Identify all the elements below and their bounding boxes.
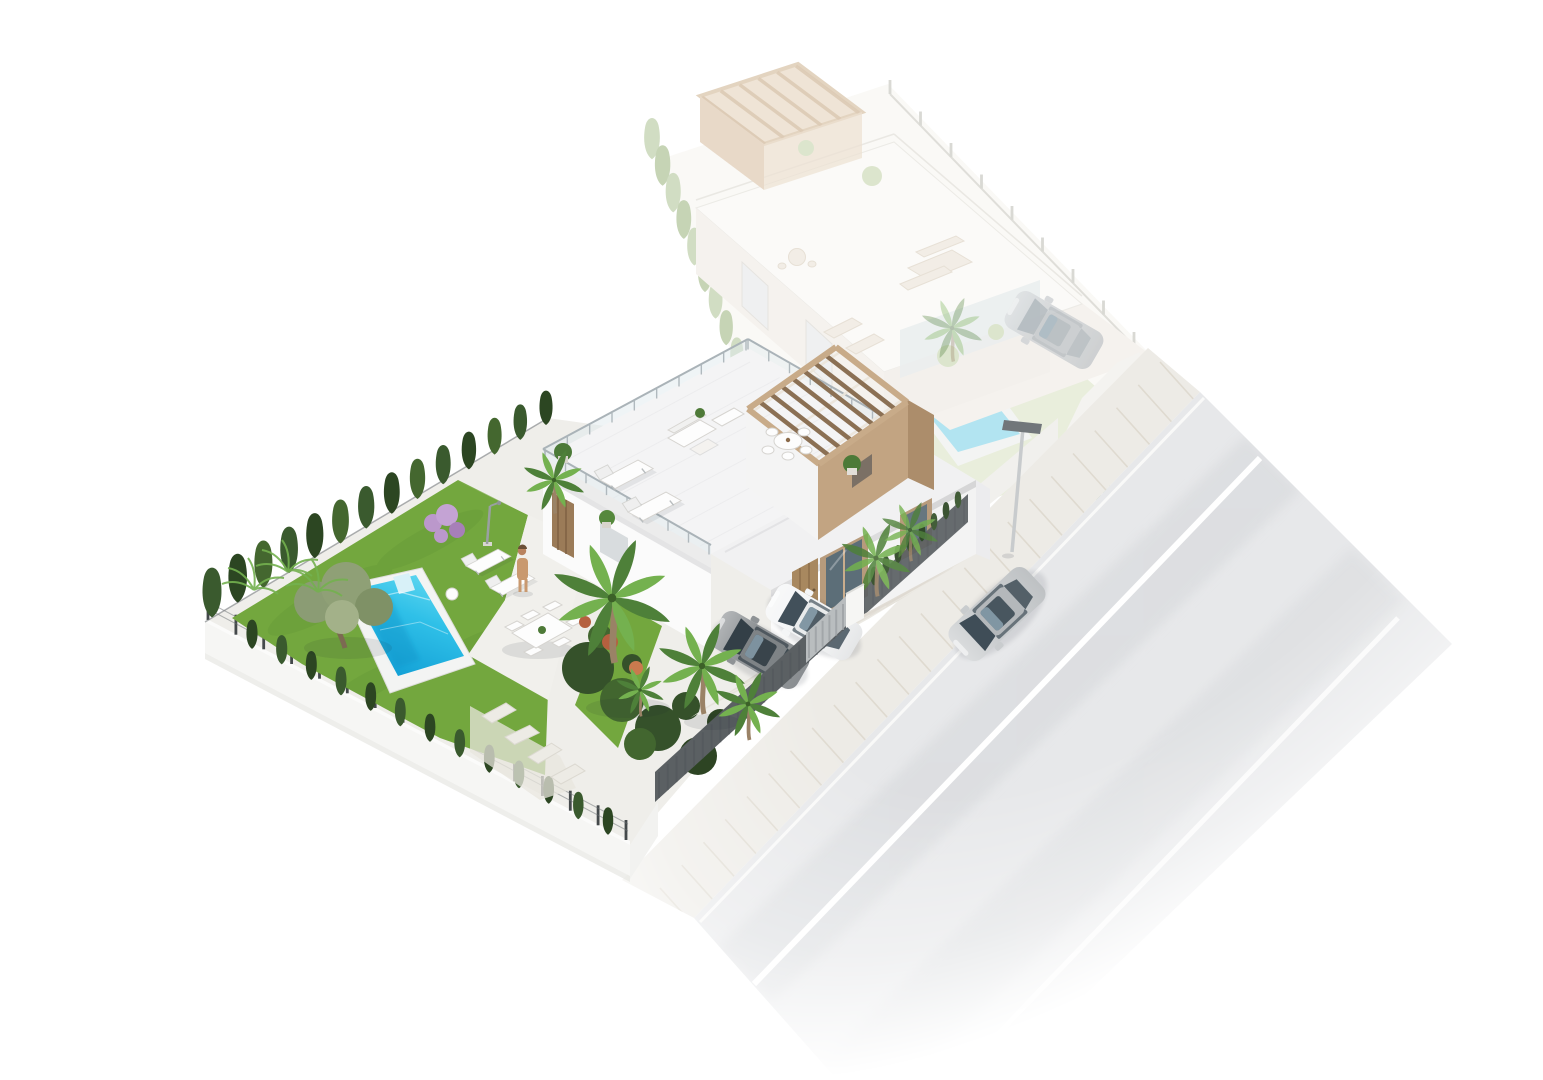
scene (0, 0, 1543, 1080)
render-canvas (0, 0, 1543, 1080)
side-table (446, 588, 458, 600)
east-side-face (976, 480, 990, 560)
